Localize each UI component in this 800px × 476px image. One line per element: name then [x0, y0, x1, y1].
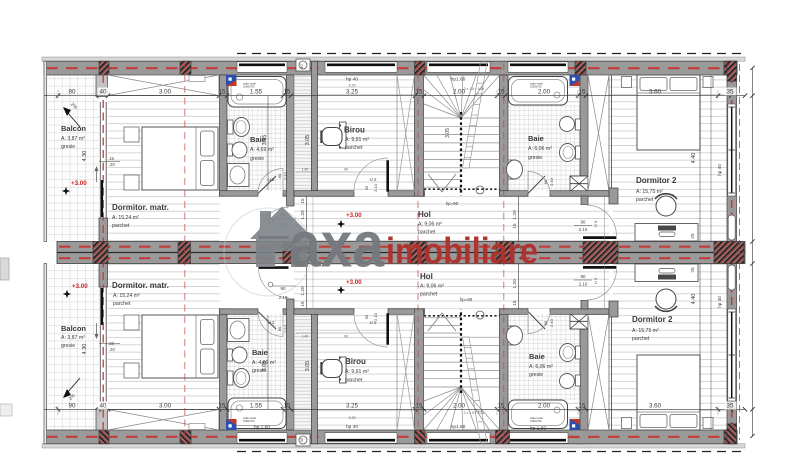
svg-text:U 2: U 2 — [268, 320, 275, 325]
svg-text:hp=90: hp=90 — [446, 201, 459, 206]
svg-text:hp 1,60: hp 1,60 — [254, 425, 270, 431]
svg-text:2.10: 2.10 — [279, 295, 288, 300]
svg-text:Balcon: Balcon — [61, 124, 86, 133]
svg-text:1.20: 1.20 — [300, 286, 306, 296]
svg-text:parchet: parchet — [113, 301, 131, 307]
svg-text:.15: .15 — [108, 156, 114, 161]
svg-text:U 2: U 2 — [370, 177, 377, 182]
svg-text:+3.00: +3.00 — [72, 283, 88, 290]
svg-text:40: 40 — [300, 64, 304, 68]
svg-text:1500x700: 1500x700 — [530, 85, 542, 89]
svg-text:15: 15 — [579, 403, 586, 410]
svg-text:2.10: 2.10 — [549, 177, 554, 186]
svg-text:3.60: 3.60 — [649, 89, 662, 96]
svg-text:A: 3,87 m²: A: 3,87 m² — [61, 335, 85, 341]
svg-text:2 x 1,5 + 6,35: 2 x 1,5 + 6,35 — [464, 87, 485, 91]
svg-text:90: 90 — [69, 403, 76, 410]
svg-text:1.40: 1.40 — [302, 335, 309, 339]
svg-text:15: 15 — [284, 89, 291, 96]
svg-text:2.10: 2.10 — [283, 171, 288, 180]
svg-text:Dormitor. matr.: Dormitor. matr. — [112, 203, 169, 212]
svg-text:parchet: parchet — [420, 292, 438, 298]
svg-text:15: 15 — [219, 403, 226, 410]
svg-text:U 3: U 3 — [593, 277, 598, 284]
svg-text:1.55: 1.55 — [250, 403, 263, 410]
svg-text:gresie: gresie — [250, 156, 264, 162]
svg-text:90: 90 — [344, 168, 348, 172]
svg-text:1.55: 1.55 — [250, 89, 263, 96]
svg-text:3.25: 3.25 — [349, 416, 356, 420]
svg-text:U 3: U 3 — [593, 220, 598, 227]
svg-text:60: 60 — [277, 326, 282, 331]
svg-text:3.25: 3.25 — [349, 83, 356, 87]
svg-text:hp1.60: hp1.60 — [451, 424, 466, 430]
svg-text:Birou: Birou — [344, 126, 365, 135]
svg-text:hp=90: hp=90 — [460, 297, 473, 302]
svg-text:A: 9,91 m²: A: 9,91 m² — [345, 369, 369, 375]
svg-text:1500x700: 1500x700 — [243, 419, 255, 423]
svg-text:40: 40 — [100, 403, 107, 410]
svg-text:35: 35 — [727, 403, 734, 410]
svg-text:Dormitor 2: Dormitor 2 — [636, 176, 677, 185]
svg-text:60: 60 — [543, 179, 548, 184]
svg-text:.20: .20 — [109, 162, 115, 167]
svg-text:gresie: gresie — [528, 155, 542, 161]
svg-text:15: 15 — [219, 89, 226, 96]
svg-text:Hol: Hol — [418, 210, 431, 219]
svg-text:imobiliare: imobiliare — [386, 231, 538, 272]
svg-text:4.30: 4.30 — [82, 344, 88, 355]
svg-text:hp 40: hp 40 — [346, 424, 358, 430]
svg-text:60: 60 — [543, 320, 548, 325]
svg-text:1.20: 1.20 — [512, 279, 518, 289]
svg-text:Baie: Baie — [529, 352, 545, 361]
svg-text:2.10: 2.10 — [549, 318, 554, 327]
svg-text:2.00: 2.00 — [538, 89, 551, 96]
svg-text:Hol: Hol — [420, 272, 433, 281]
svg-text:25: 25 — [690, 233, 695, 239]
svg-text:4.40: 4.40 — [691, 294, 697, 305]
svg-text:Baie: Baie — [528, 134, 544, 143]
svg-text:A: 4,69 m²: A: 4,69 m² — [250, 147, 274, 153]
svg-text:parchet: parchet — [345, 378, 363, 384]
svg-text:Balcon: Balcon — [61, 324, 86, 333]
svg-text:A: 6,06 m²: A: 6,06 m² — [528, 146, 552, 152]
svg-text:parchet: parchet — [112, 223, 130, 229]
svg-text:Dormitor 2: Dormitor 2 — [632, 315, 673, 324]
svg-text:1500x700: 1500x700 — [530, 419, 542, 423]
svg-text:A: 15,24 m²: A: 15,24 m² — [112, 215, 139, 221]
svg-text:3.25: 3.25 — [346, 89, 359, 96]
svg-text:hp 40: hp 40 — [717, 296, 722, 308]
svg-text:2.00: 2.00 — [538, 403, 551, 410]
svg-text:Birou: Birou — [345, 357, 366, 366]
svg-text:gresie: gresie — [61, 343, 75, 349]
svg-text:3.60: 3.60 — [649, 403, 662, 410]
svg-text:A: 15,75 m²: A: 15,75 m² — [636, 189, 663, 195]
svg-text:4.40: 4.40 — [691, 153, 697, 164]
svg-text:A: 9,06 m²: A: 9,06 m² — [420, 284, 444, 290]
svg-text:3.25: 3.25 — [346, 403, 359, 410]
svg-text:40: 40 — [100, 89, 107, 96]
svg-text:90: 90 — [364, 185, 369, 190]
svg-text:3.05: 3.05 — [262, 361, 268, 372]
svg-text:3.05: 3.05 — [305, 135, 311, 146]
svg-text:parchet: parchet — [345, 145, 363, 151]
svg-text:90: 90 — [344, 335, 348, 339]
svg-text:hp1.60: hp1.60 — [451, 77, 466, 83]
svg-text:A: 6,06 m²: A: 6,06 m² — [529, 364, 553, 370]
svg-text:2.10: 2.10 — [579, 227, 588, 232]
svg-text:15: 15 — [416, 89, 423, 96]
svg-text:60: 60 — [277, 173, 282, 178]
svg-text:1.20: 1.20 — [512, 210, 518, 220]
svg-text:15: 15 — [512, 300, 517, 306]
svg-text:3.05: 3.05 — [305, 361, 311, 372]
svg-text:2.10: 2.10 — [373, 183, 378, 192]
svg-text:90: 90 — [364, 314, 369, 319]
svg-text:25: 25 — [690, 267, 695, 273]
svg-text:1500x700: 1500x700 — [243, 85, 255, 89]
svg-text:2 x 1,5 + 6,35: 2 x 1,5 + 6,35 — [464, 411, 485, 415]
svg-text:15: 15 — [284, 403, 291, 410]
svg-text:15: 15 — [416, 403, 423, 410]
svg-text:U 2: U 2 — [268, 177, 275, 182]
svg-text:Baie: Baie — [252, 348, 268, 357]
svg-text:15: 15 — [498, 403, 505, 410]
svg-text:90: 90 — [281, 286, 286, 291]
svg-text:15: 15 — [512, 223, 517, 229]
svg-text:gresie: gresie — [529, 372, 543, 378]
svg-text:+3.00: +3.00 — [71, 180, 87, 187]
svg-text:A: 9,91 m²: A: 9,91 m² — [345, 137, 369, 143]
svg-text:90: 90 — [581, 274, 586, 279]
svg-text:3.00: 3.00 — [159, 89, 172, 96]
svg-text:1.40: 1.40 — [302, 168, 309, 172]
svg-text:15: 15 — [300, 198, 305, 204]
svg-text:parchet: parchet — [636, 197, 654, 203]
svg-text:15: 15 — [498, 89, 505, 96]
svg-text:hp 1,60: hp 1,60 — [530, 426, 546, 432]
svg-text:15: 15 — [300, 301, 305, 307]
svg-text:parchet: parchet — [632, 336, 650, 342]
svg-text:A: 15,24 m²: A: 15,24 m² — [113, 293, 140, 299]
svg-text:4.30: 4.30 — [82, 151, 88, 162]
svg-text:3.00: 3.00 — [159, 403, 172, 410]
svg-text:2.10: 2.10 — [283, 324, 288, 333]
svg-text:40: 40 — [300, 438, 304, 442]
svg-text:hp 40: hp 40 — [717, 164, 722, 176]
svg-text:Dormitor. matr.: Dormitor. matr. — [112, 281, 169, 290]
svg-text:35: 35 — [727, 89, 734, 96]
svg-text:.20: .20 — [109, 347, 115, 352]
svg-text:A: 3,87 m²: A: 3,87 m² — [61, 136, 85, 142]
svg-text:hp 40: hp 40 — [346, 77, 358, 83]
svg-text:15: 15 — [579, 89, 586, 96]
svg-text:A: 15,75 m²: A: 15,75 m² — [632, 328, 659, 334]
svg-text:90: 90 — [69, 89, 76, 96]
svg-text:3.05: 3.05 — [262, 135, 268, 146]
svg-text:2.10: 2.10 — [373, 312, 378, 321]
svg-text:3.05: 3.05 — [445, 128, 451, 138]
svg-text:A: 9,06 m²: A: 9,06 m² — [418, 222, 442, 228]
svg-text:2.10: 2.10 — [579, 282, 588, 287]
svg-text:2.00: 2.00 — [453, 403, 466, 410]
svg-text:.15: .15 — [108, 341, 114, 346]
svg-text:axa: axa — [289, 209, 384, 281]
svg-text:gresie: gresie — [61, 144, 75, 150]
svg-text:90: 90 — [581, 220, 586, 225]
